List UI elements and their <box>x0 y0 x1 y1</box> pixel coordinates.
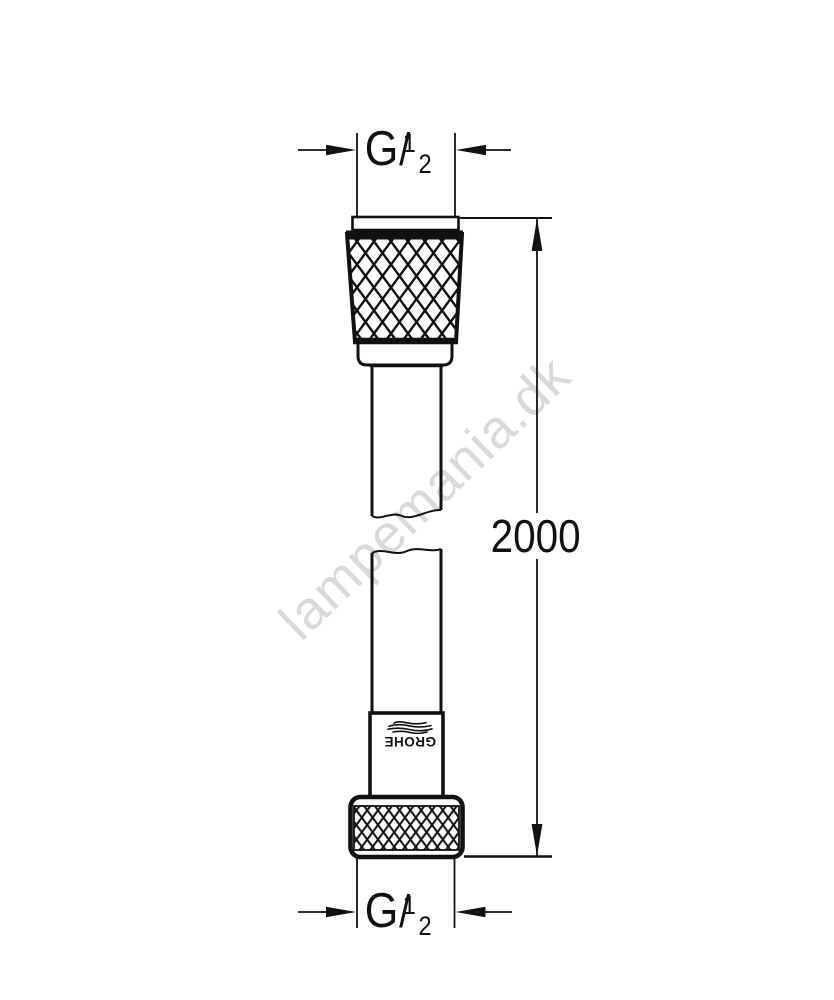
arrowhead-left-icon <box>456 907 486 917</box>
length-value-label: 2000 <box>488 513 583 559</box>
arrowhead-up-icon <box>532 219 543 252</box>
fraction-slash: / <box>399 127 410 172</box>
inlet-cap <box>353 217 459 230</box>
break-line-upper <box>372 510 441 518</box>
hose-tube-lower <box>372 549 441 714</box>
fraction-denominator: 2 <box>418 151 431 178</box>
arrowhead-left-icon <box>456 145 486 155</box>
arrowhead-right-icon <box>326 145 356 155</box>
thread-size-label-top: G 1 / 2 <box>356 124 437 182</box>
inlet-knurled-nut <box>347 234 462 342</box>
break-line-lower <box>372 549 441 553</box>
brand-wordmark: GROHE <box>384 735 436 748</box>
technical-drawing-canvas: lampemania.dk <box>0 0 834 1000</box>
thread-letter: G <box>365 125 399 174</box>
thread-letter: G <box>365 887 399 936</box>
arrowhead-down-icon <box>532 824 543 856</box>
outlet-knurled-nut <box>351 797 463 857</box>
top-connector <box>346 217 463 366</box>
thread-size-label-bottom: G 1 / 2 <box>356 886 437 944</box>
arrowhead-right-icon <box>326 907 356 917</box>
outlet-nut-knurl <box>354 806 459 850</box>
water-wave-icon <box>386 721 434 734</box>
fraction-denominator: 2 <box>418 913 431 940</box>
inlet-collar <box>358 342 452 365</box>
hose-tube-upper <box>372 366 441 517</box>
brand-logo: GROHE <box>383 720 437 748</box>
fraction-slash: / <box>399 889 410 934</box>
